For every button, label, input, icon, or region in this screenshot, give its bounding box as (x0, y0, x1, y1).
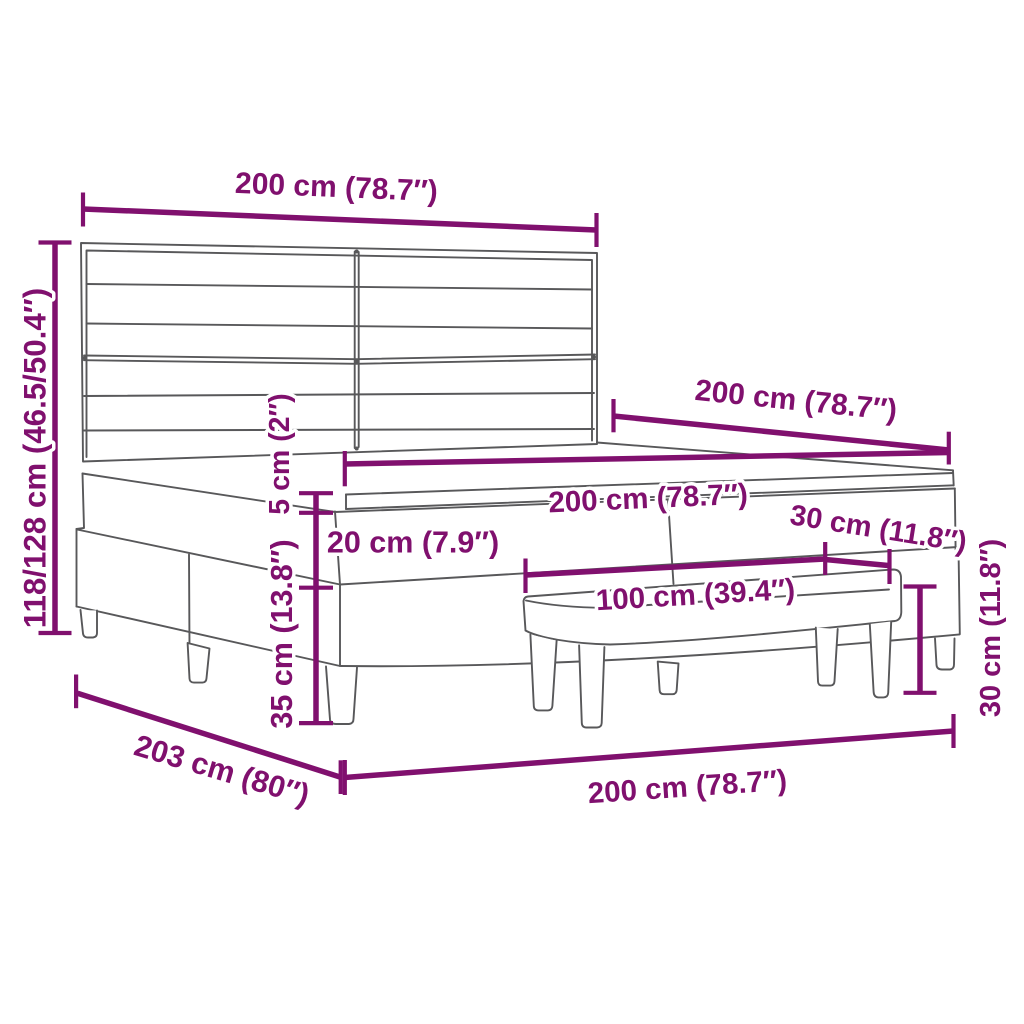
svg-text:118/128 cm (46.5/50.4″): 118/128 cm (46.5/50.4″) (18, 288, 53, 628)
svg-text:20 cm (7.9″): 20 cm (7.9″) (327, 526, 499, 560)
svg-text:5 cm (2″): 5 cm (2″) (264, 393, 296, 514)
svg-text:30 cm (11.8″): 30 cm (11.8″) (975, 539, 1007, 717)
svg-text:35 cm (13.8″): 35 cm (13.8″) (265, 539, 299, 728)
